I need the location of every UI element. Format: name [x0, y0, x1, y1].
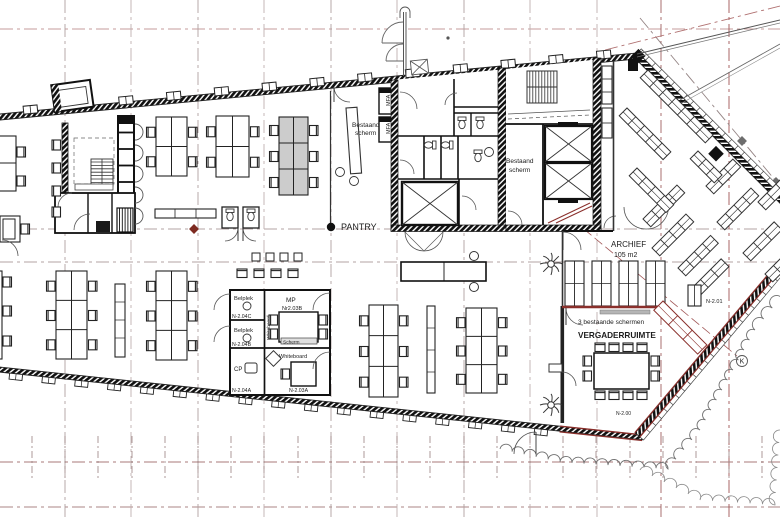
svg-text:3 bestaande schermen: 3 bestaande schermen [578, 319, 645, 326]
svg-text:scherm: scherm [509, 167, 530, 174]
svg-text:N-2.01: N-2.01 [706, 299, 723, 305]
svg-text:N-2.03A: N-2.03A [289, 388, 309, 394]
svg-text:N-2.04A: N-2.04A [232, 388, 252, 394]
svg-text:scherm: scherm [355, 130, 376, 137]
svg-text:N-2.04B: N-2.04B [232, 342, 252, 348]
svg-text:CP: CP [234, 367, 242, 373]
svg-text:Belplek: Belplek [234, 296, 253, 302]
svg-text:Whiteboard: Whiteboard [279, 354, 307, 360]
svg-text:105 m2: 105 m2 [614, 252, 637, 259]
svg-text:N-2.04C: N-2.04C [232, 314, 252, 320]
svg-text:Scherm: Scherm [283, 340, 300, 346]
svg-text:Belplek: Belplek [234, 328, 253, 334]
svg-text:N-2.00: N-2.00 [616, 411, 631, 417]
svg-text:MP: MP [286, 297, 296, 304]
svg-text:PANTRY: PANTRY [341, 222, 377, 232]
svg-text:Nr2.03B: Nr2.03B [282, 306, 303, 312]
svg-text:ARCHIEF: ARCHIEF [611, 240, 646, 249]
svg-text:Bestaand: Bestaand [352, 122, 380, 129]
svg-text:Bestaand: Bestaand [506, 158, 534, 165]
svg-text:VERGADERRUIMTE: VERGADERRUIMTE [578, 331, 656, 340]
svg-text:K: K [740, 359, 745, 366]
